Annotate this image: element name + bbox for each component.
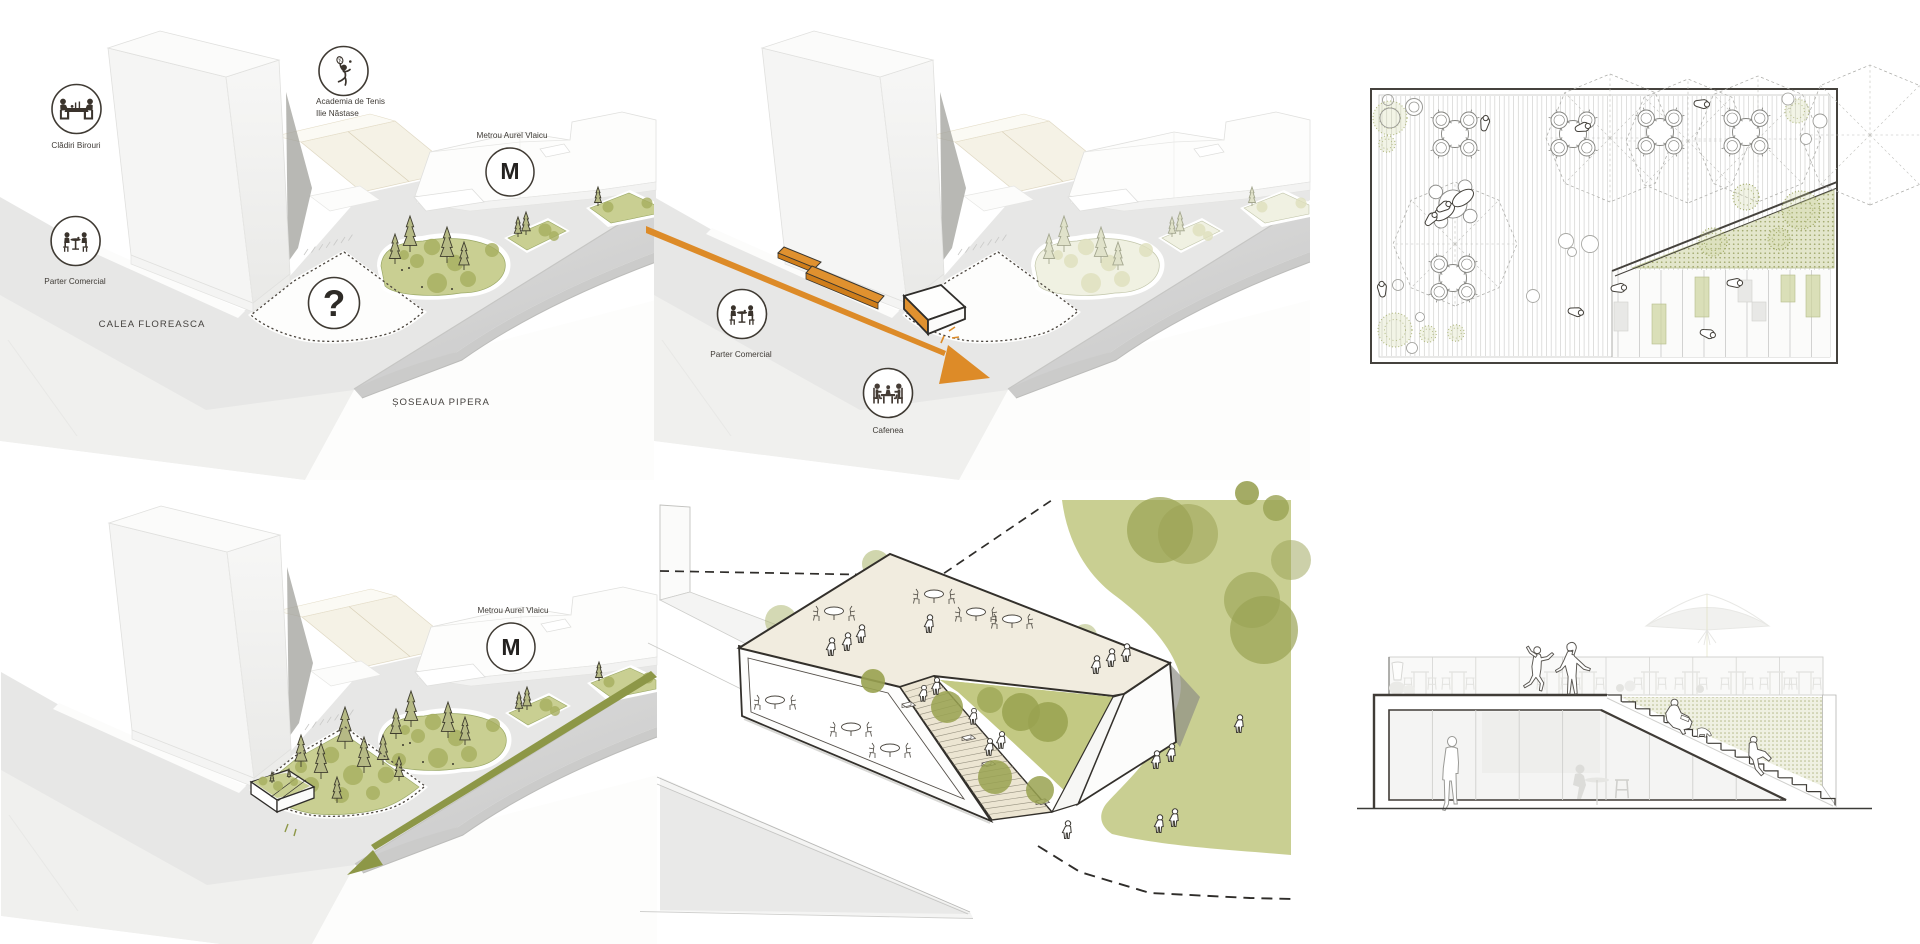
svg-text:Cafenea: Cafenea (873, 426, 904, 435)
svg-text:Metrou Aurel Vlaicu: Metrou Aurel Vlaicu (477, 131, 548, 140)
svg-text:M: M (500, 158, 519, 184)
svg-text:ȘOSEAUA PIPERA: ȘOSEAUA PIPERA (392, 397, 490, 408)
svg-text:Clădiri Birouri: Clădiri Birouri (51, 141, 100, 150)
svg-text:CALEA FLOREASCA: CALEA FLOREASCA (99, 319, 206, 330)
svg-text:Metrou Aurel Vlaicu: Metrou Aurel Vlaicu (478, 606, 549, 615)
svg-text:Ilie Năstase: Ilie Năstase (316, 109, 359, 118)
svg-text:Academia de Tenis: Academia de Tenis (316, 97, 385, 106)
svg-text:Parter Comercial: Parter Comercial (44, 277, 106, 286)
svg-text:Parter Comercial: Parter Comercial (710, 350, 772, 359)
svg-text:?: ? (323, 283, 346, 324)
svg-text:M: M (501, 634, 520, 660)
